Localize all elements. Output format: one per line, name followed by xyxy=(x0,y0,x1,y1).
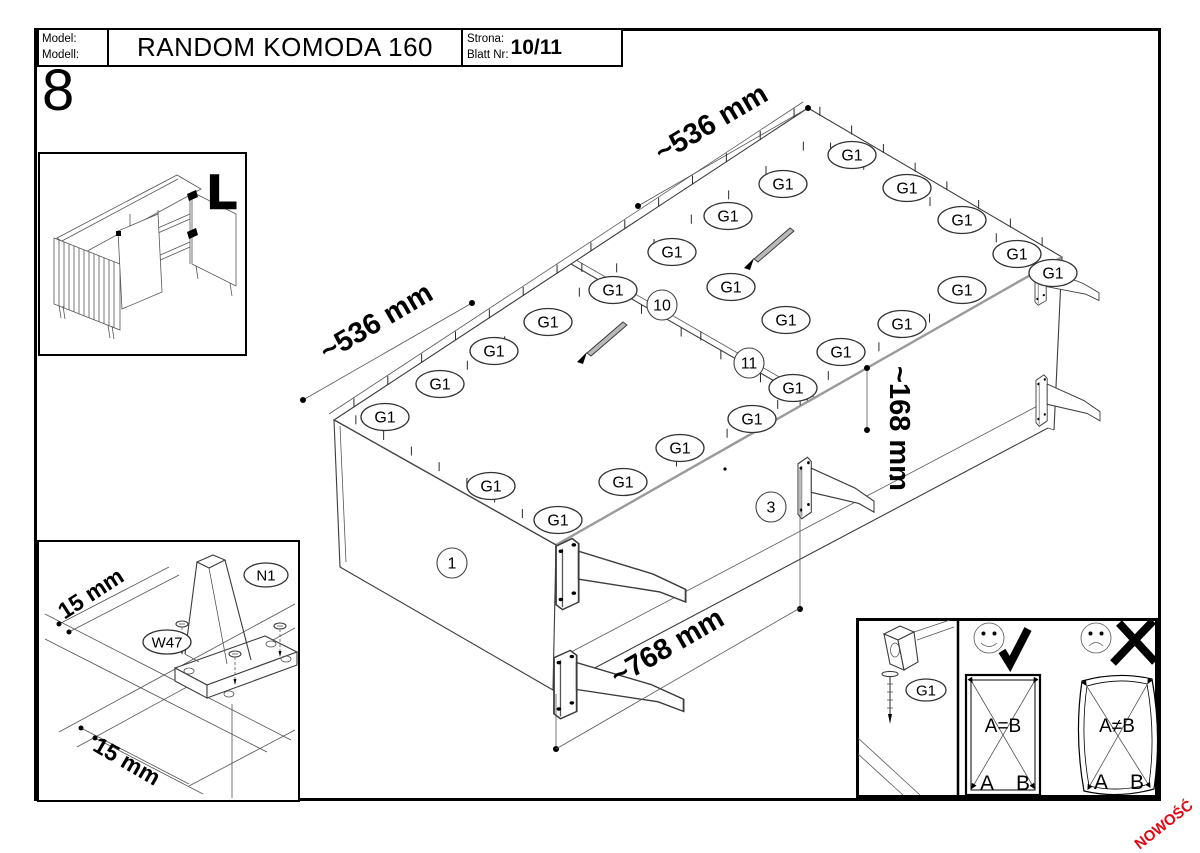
overview-drawing: L xyxy=(40,154,245,354)
orientation-letter: L xyxy=(208,165,237,218)
svg-text:A≠B: A≠B xyxy=(1099,716,1135,737)
svg-text:G1: G1 xyxy=(916,682,936,699)
svg-text:A: A xyxy=(980,772,994,795)
dim-height: ~168 mm xyxy=(883,366,915,491)
leg-bracket xyxy=(798,457,874,519)
g1-label: G1 xyxy=(896,181,917,198)
g1-label: G1 xyxy=(669,441,690,458)
svg-text:W47: W47 xyxy=(152,634,183,651)
svg-text:A=B: A=B xyxy=(985,716,1021,737)
leg-dim-top: 15 mm xyxy=(53,563,128,624)
leg-dim-bottom: 15 mm xyxy=(89,732,165,791)
leg-detail-inset: 15 mm 15 mm N1 W47 xyxy=(37,540,300,802)
part-number-label: 3 xyxy=(767,500,776,517)
g1-label: G1 xyxy=(480,479,501,496)
g1-label: G1 xyxy=(661,245,682,262)
g1-label: G1 xyxy=(547,513,568,530)
g1-label: G1 xyxy=(483,344,504,361)
svg-text:N1: N1 xyxy=(256,567,275,584)
svg-text:B: B xyxy=(1130,771,1144,794)
g1-label: G1 xyxy=(720,280,741,297)
part-number-side-panel: 1 xyxy=(437,548,467,578)
g1-label: G1 xyxy=(830,345,851,362)
g1-label: G1 xyxy=(741,412,762,429)
diagonal-check-ok: A=B A B xyxy=(966,675,1040,795)
happy-face-icon xyxy=(974,623,1004,653)
check-panel-drawing: G1 A=B A B xyxy=(856,618,1158,798)
leg-detail-drawing: 15 mm 15 mm N1 W47 xyxy=(39,542,298,800)
diagonal-check-bad: A≠B A B xyxy=(1078,675,1157,794)
part-number-back-left: 10 xyxy=(647,290,677,320)
g1-label: G1 xyxy=(602,283,623,300)
back-panels-face xyxy=(334,108,1062,545)
part-number-label: 11 xyxy=(741,356,758,373)
dim-bottom: ~768 mm xyxy=(605,602,729,692)
check-panel: G1 A=B A B xyxy=(856,618,1158,798)
svg-text:B: B xyxy=(1016,772,1030,795)
leg-bracket xyxy=(1036,375,1100,427)
middle-door xyxy=(118,214,162,309)
nail-part-label: G1 xyxy=(906,679,946,701)
sad-face-icon xyxy=(1081,623,1111,653)
part-number-back-right: 11 xyxy=(734,348,764,378)
assembly-instruction-page: { "header": { "model_label_line1": "Mode… xyxy=(0,0,1200,848)
g1-label: G1 xyxy=(537,315,558,332)
part-number-bottom-rail: 3 xyxy=(756,492,786,522)
part-number-label: 1 xyxy=(448,556,457,573)
leg-part-label: N1 xyxy=(244,563,288,587)
leg-bracket xyxy=(556,539,686,610)
g1-label: G1 xyxy=(1006,247,1027,264)
g1-label: G1 xyxy=(891,317,912,334)
g1-label: G1 xyxy=(841,148,862,165)
g1-label: G1 xyxy=(772,177,793,194)
g1-label: G1 xyxy=(1042,266,1063,283)
g1-label: G1 xyxy=(612,475,633,492)
svg-text:A: A xyxy=(1094,771,1108,794)
overview-inset: L xyxy=(38,152,247,356)
part-number-label: 10 xyxy=(653,298,671,315)
g1-label: G1 xyxy=(717,209,738,226)
g1-label: G1 xyxy=(951,283,972,300)
g1-label: G1 xyxy=(374,410,395,427)
g1-label: G1 xyxy=(782,381,803,398)
g1-label: G1 xyxy=(951,213,972,230)
screw-part-label: W47 xyxy=(143,630,191,654)
g1-label: G1 xyxy=(775,313,796,330)
g1-label: G1 xyxy=(429,377,450,394)
